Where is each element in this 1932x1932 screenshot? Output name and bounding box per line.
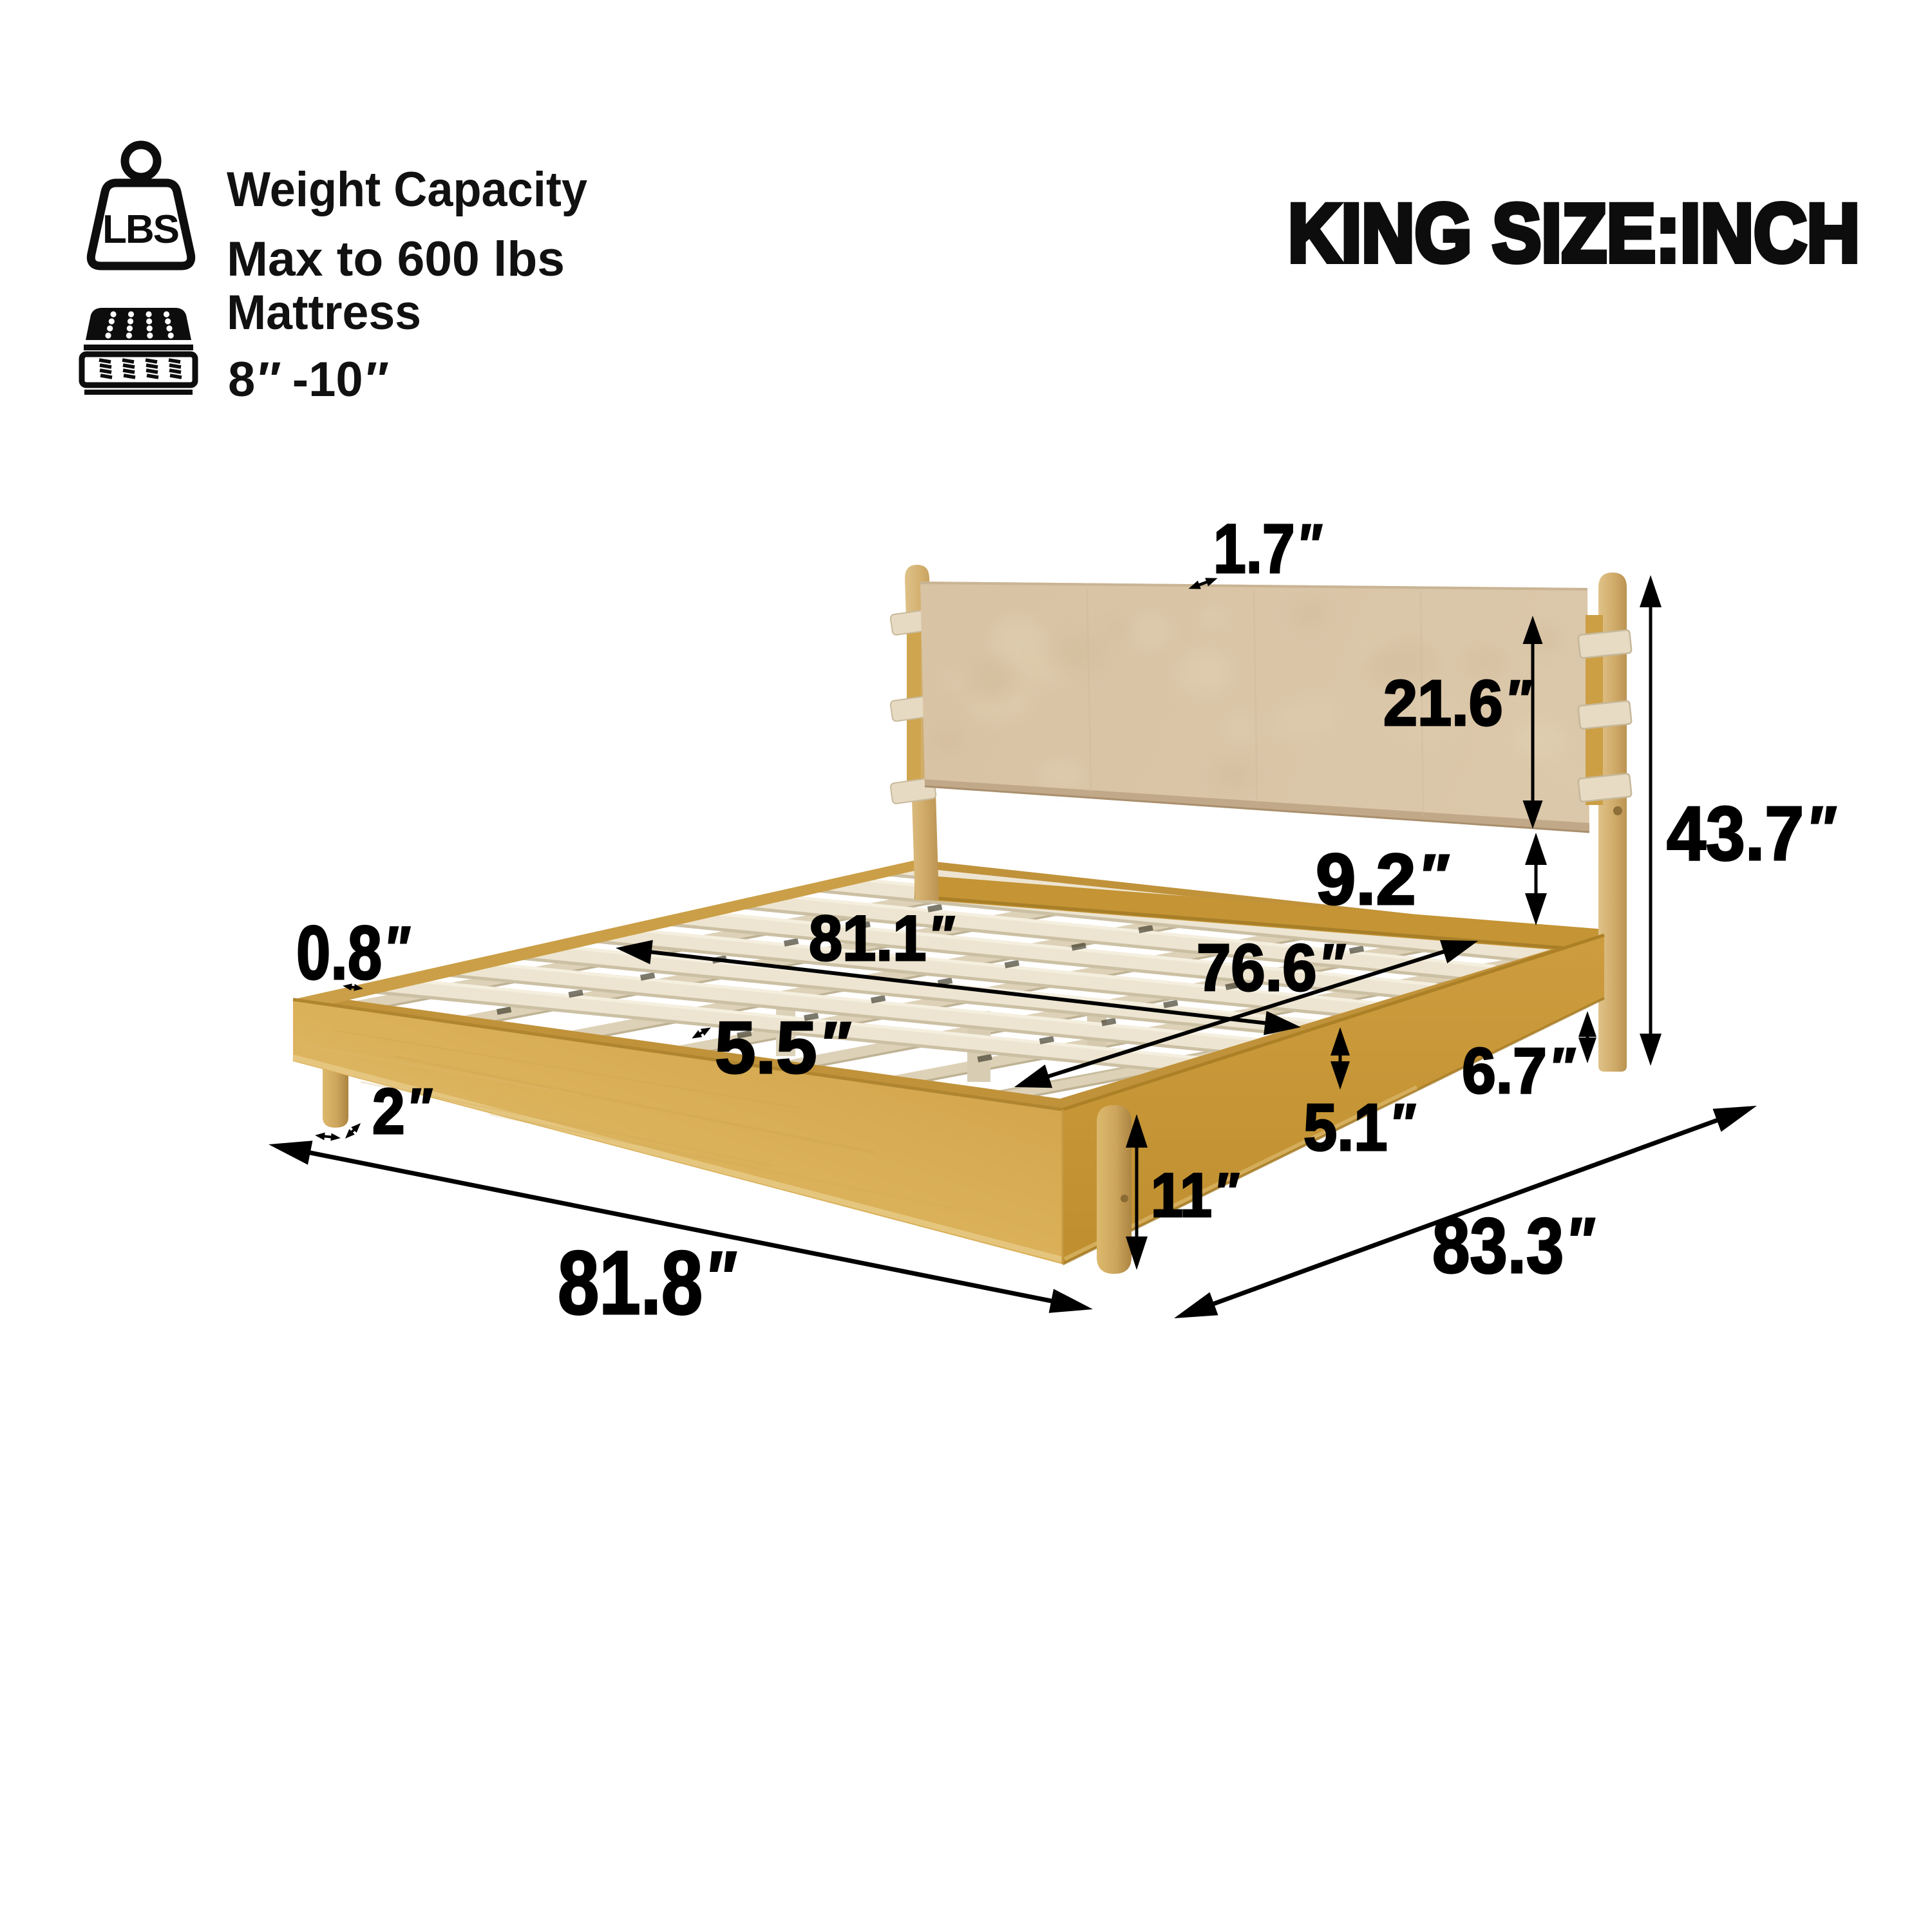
svg-text:43.7″: 43.7″ [1667,791,1836,876]
svg-text:21.6″: 21.6″ [1383,667,1532,739]
svg-text:6.7″: 6.7″ [1462,1035,1576,1107]
svg-text:81.8″: 81.8″ [558,1233,736,1334]
svg-text:76.6″: 76.6″ [1197,931,1345,1005]
svg-text:8″ -10″: 8″ -10″ [228,352,389,407]
svg-text:Mattress: Mattress [227,285,421,340]
svg-text:2″: 2″ [372,1075,432,1148]
svg-text:5.1″: 5.1″ [1303,1090,1416,1164]
svg-text:1.7″: 1.7″ [1213,511,1321,588]
svg-text:0.8″: 0.8″ [296,910,410,995]
svg-text:5.5″: 5.5″ [715,1007,850,1089]
svg-text:Weight Capacity: Weight Capacity [227,162,587,217]
svg-text:83.3″: 83.3″ [1432,1202,1595,1290]
svg-text:9.2″: 9.2″ [1316,839,1449,920]
svg-text:LBS: LBS [102,207,178,252]
svg-text:11″: 11″ [1151,1160,1239,1230]
svg-text:81.1″: 81.1″ [809,904,954,974]
svg-text:KING SIZE:INCH: KING SIZE:INCH [1288,187,1860,279]
svg-text:Max to 600 lbs: Max to 600 lbs [227,232,565,287]
